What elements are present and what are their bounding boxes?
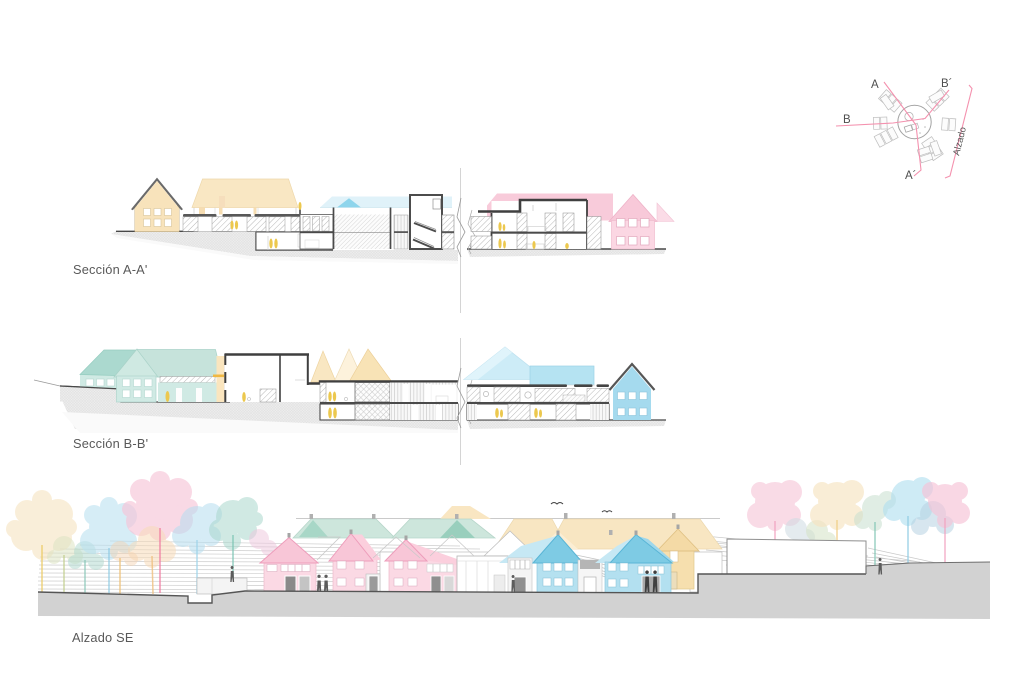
svg-text:A: A — [871, 79, 879, 91]
svg-text:Sección B-B': Sección B-B' — [73, 436, 148, 451]
svg-text:B´: B´ — [941, 78, 953, 90]
svg-text:Sección A-A': Sección A-A' — [73, 262, 148, 277]
svg-text:Alzado SE: Alzado SE — [72, 630, 134, 645]
svg-text:B: B — [843, 114, 851, 126]
svg-text:A´: A´ — [905, 170, 917, 182]
